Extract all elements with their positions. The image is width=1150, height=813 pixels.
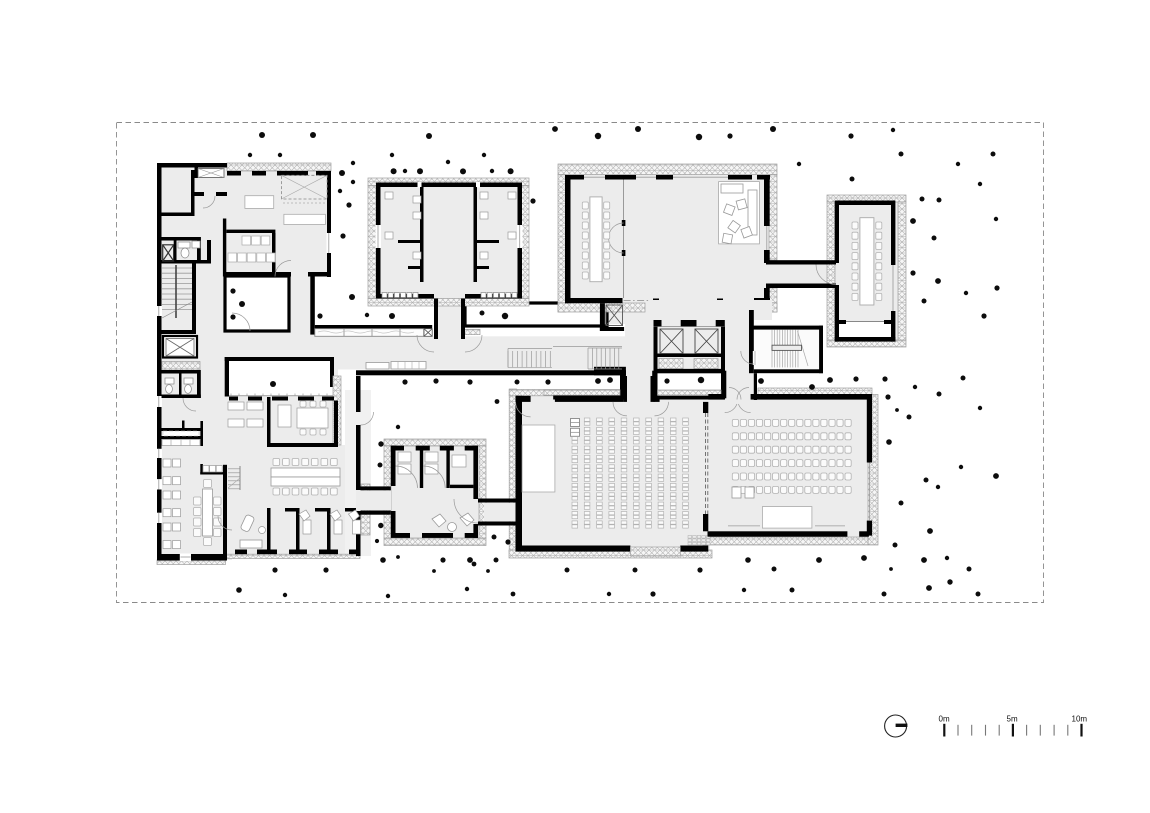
svg-text:10m: 10m xyxy=(1072,715,1088,724)
svg-text:0m: 0m xyxy=(939,715,950,724)
svg-text:5m: 5m xyxy=(1007,715,1018,724)
